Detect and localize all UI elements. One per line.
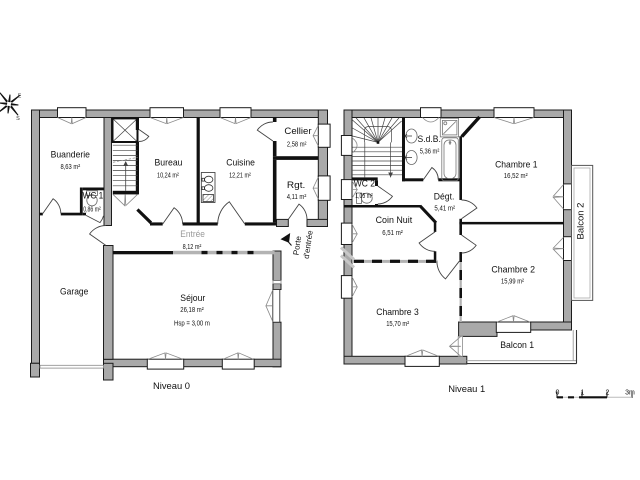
svg-text:Cellier: Cellier (284, 126, 311, 137)
svg-text:Balcon 1: Balcon 1 (500, 340, 534, 351)
svg-text:Bureau: Bureau (155, 158, 183, 169)
svg-text:0,86 m²: 0,86 m² (83, 205, 101, 214)
svg-text:Rgt.: Rgt. (287, 180, 305, 191)
svg-text:S: S (16, 116, 20, 122)
svg-text:4,11 m²: 4,11 m² (287, 192, 307, 201)
svg-text:WC 1: WC 1 (83, 190, 104, 201)
svg-text:12,21 m²: 12,21 m² (229, 171, 251, 180)
svg-text:Cuisine: Cuisine (226, 158, 255, 169)
svg-text:1: 1 (581, 390, 585, 397)
svg-text:Chambre 3: Chambre 3 (376, 307, 419, 318)
svg-text:Dégt.: Dégt. (434, 191, 455, 202)
svg-text:Coin Nuit: Coin Nuit (376, 215, 413, 226)
svg-text:Niveau 0: Niveau 0 (153, 381, 190, 392)
svg-text:Séjour: Séjour (180, 293, 205, 304)
svg-text:2,58 m²: 2,58 m² (287, 139, 307, 148)
svg-text:15,70 m²: 15,70 m² (386, 319, 409, 328)
svg-text:15,99 m²: 15,99 m² (501, 277, 524, 286)
svg-text:1,05 m²: 1,05 m² (355, 191, 373, 200)
svg-text:Balcon 2: Balcon 2 (576, 203, 587, 240)
svg-text:WC 2: WC 2 (354, 178, 375, 189)
svg-text:6,51 m²: 6,51 m² (382, 228, 403, 237)
svg-text:26,18 m²: 26,18 m² (180, 305, 204, 314)
svg-text:Buanderie: Buanderie (51, 150, 90, 161)
svg-text:10,24 m²: 10,24 m² (157, 171, 179, 180)
svg-text:Chambre 2: Chambre 2 (491, 265, 535, 276)
svg-text:5,36 m²: 5,36 m² (420, 147, 440, 156)
svg-text:8,12 m²: 8,12 m² (183, 242, 202, 251)
svg-text:0: 0 (556, 390, 560, 397)
svg-text:16,52 m²: 16,52 m² (504, 171, 528, 180)
svg-text:Entrée: Entrée (180, 229, 205, 240)
svg-text:S.d.B.: S.d.B. (418, 134, 441, 145)
svg-text:5,41 m²: 5,41 m² (434, 204, 455, 213)
svg-text:8,63 m²: 8,63 m² (60, 162, 80, 171)
svg-text:3m: 3m (625, 390, 635, 397)
svg-text:Hsp = 3,00 m: Hsp = 3,00 m (174, 318, 210, 327)
svg-text:2: 2 (606, 390, 610, 397)
svg-text:Garage: Garage (60, 287, 88, 298)
svg-text:Chambre 1: Chambre 1 (495, 160, 537, 171)
svg-text:Niveau 1: Niveau 1 (448, 384, 485, 395)
svg-text:E: E (18, 94, 22, 100)
